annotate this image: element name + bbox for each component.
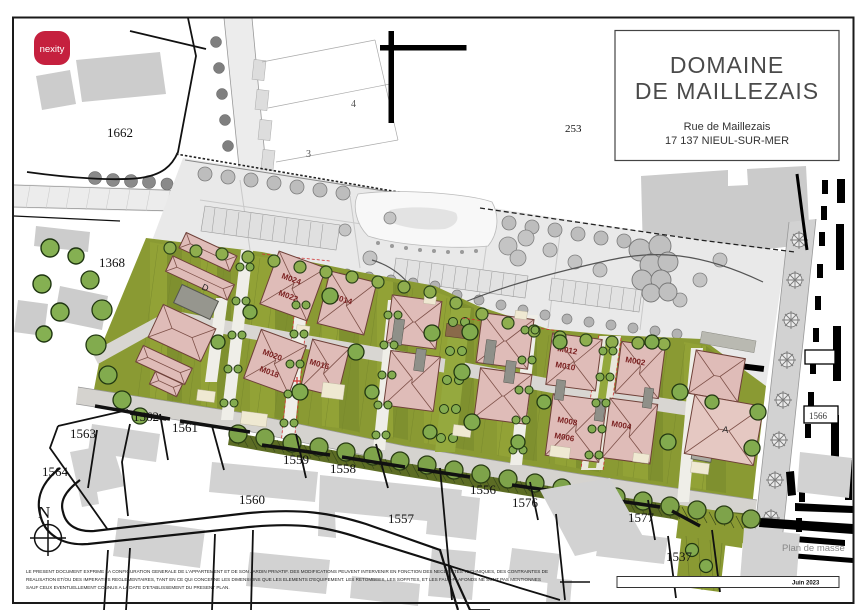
svg-text:1559: 1559 — [283, 452, 309, 467]
svg-text:1557: 1557 — [388, 511, 415, 526]
svg-text:1560: 1560 — [239, 492, 265, 507]
svg-text:1662: 1662 — [107, 125, 133, 140]
svg-text:1577: 1577 — [628, 510, 655, 525]
svg-text:4: 4 — [351, 99, 356, 110]
svg-text:REALISATION ET/OU DES IMPERATI: REALISATION ET/OU DES IMPERATIFS REGLEME… — [26, 577, 541, 582]
svg-text:1564: 1564 — [42, 464, 69, 479]
svg-text:Rue de Maillezais: Rue de Maillezais — [684, 121, 771, 133]
svg-text:1556: 1556 — [470, 482, 497, 497]
svg-text:N: N — [38, 503, 50, 522]
svg-text:SAUF CEUX EVENTUELLEMENT CONNU: SAUF CEUX EVENTUELLEMENT CONNUS A LA DAT… — [26, 585, 230, 590]
svg-text:1576: 1576 — [512, 495, 539, 510]
svg-text:1558: 1558 — [330, 461, 356, 476]
svg-text:LE PRESENT DOCUMENT EXPRIME LA: LE PRESENT DOCUMENT EXPRIME LA CONFIGURA… — [26, 569, 548, 574]
svg-text:nexity: nexity — [40, 44, 65, 55]
svg-text:1563: 1563 — [70, 426, 96, 441]
svg-text:DOMAINE: DOMAINE — [670, 52, 784, 78]
svg-text:Plan de masse: Plan de masse — [782, 543, 845, 554]
svg-text:3: 3 — [306, 149, 311, 160]
svg-text:1537: 1537 — [666, 549, 693, 564]
svg-text:DE MAILLEZAIS: DE MAILLEZAIS — [635, 78, 819, 104]
svg-text:1368: 1368 — [99, 255, 125, 270]
svg-text:17 137 NIEUL-SUR-MER: 17 137 NIEUL-SUR-MER — [665, 135, 789, 147]
svg-text:1566: 1566 — [809, 411, 828, 421]
svg-text:1561: 1561 — [172, 420, 198, 435]
svg-text:253: 253 — [565, 123, 582, 135]
svg-text:Juin 2023: Juin 2023 — [792, 581, 820, 587]
